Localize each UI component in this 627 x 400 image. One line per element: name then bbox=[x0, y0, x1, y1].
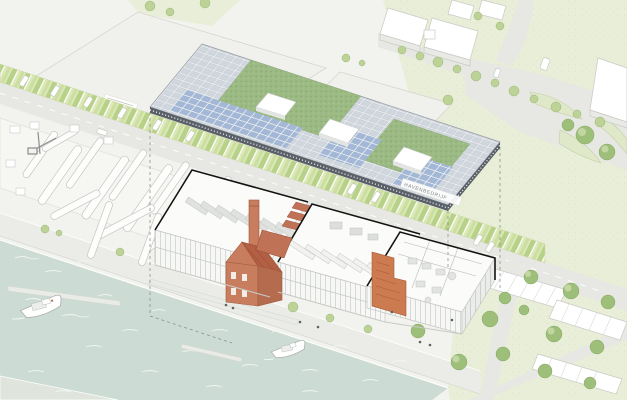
site-plan-drawing: HAVENBEDRIJF bbox=[0, 0, 627, 400]
brick-tower bbox=[249, 200, 259, 248]
architectural-site-plan: HAVENBEDRIJF bbox=[0, 0, 627, 400]
